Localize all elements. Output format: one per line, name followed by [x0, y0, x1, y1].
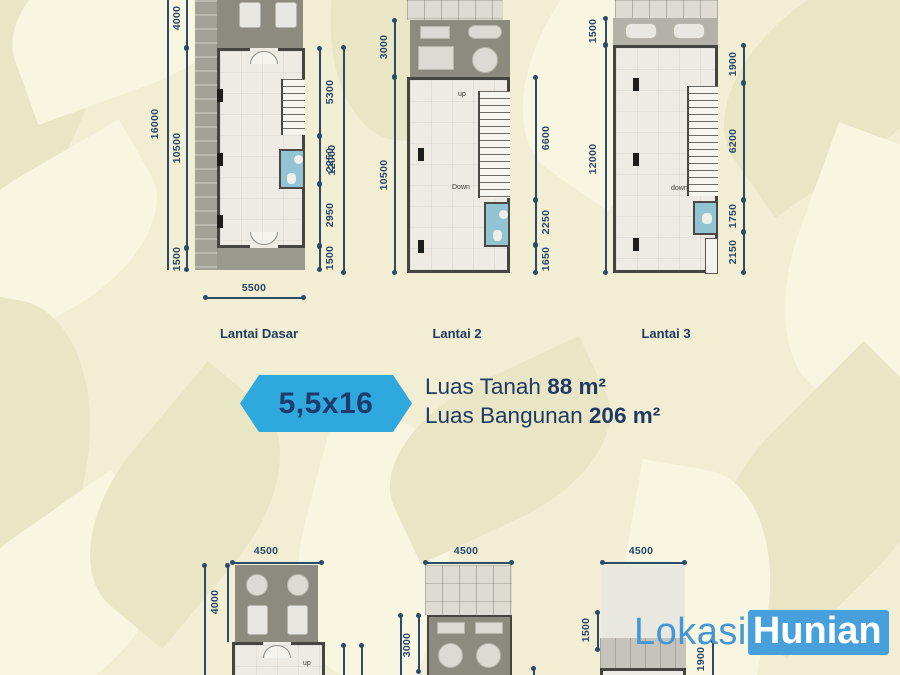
dim-line — [319, 48, 321, 136]
table-with-chairs — [287, 605, 308, 635]
watermark-logo: LokasiHunian — [634, 610, 889, 655]
door-arc — [250, 232, 264, 245]
sink-fixture — [499, 210, 508, 219]
dim-line — [319, 136, 321, 184]
dim-line — [361, 645, 363, 675]
dim-label: 3000 — [378, 35, 390, 60]
staircase — [687, 86, 718, 196]
dim-line — [602, 562, 685, 564]
dim-line — [167, 0, 169, 270]
staircase — [478, 91, 510, 198]
sofa — [673, 23, 705, 39]
dim-label: 1750 — [727, 204, 739, 229]
wall-column — [418, 148, 424, 161]
dim-label: 4000 — [209, 590, 221, 615]
dim-line — [535, 245, 537, 273]
bathroom — [279, 149, 305, 189]
dining-table — [418, 46, 454, 70]
dim-line — [605, 18, 607, 45]
toilet-fixture — [493, 230, 502, 241]
dining-table — [468, 25, 502, 39]
dim-label: 4500 — [454, 545, 479, 557]
dim-line — [597, 612, 599, 650]
size-badge-label: 5,5x16 — [279, 387, 374, 421]
specs-block: Luas Tanah 88 m² Luas Bangunan 206 m² — [425, 372, 660, 430]
dim-line — [533, 668, 535, 675]
wall-column — [217, 153, 223, 166]
dim-line — [743, 232, 745, 273]
dining-terrace — [410, 20, 510, 77]
dim-label: 12000 — [587, 144, 599, 175]
balcony — [613, 18, 718, 45]
dim-line — [535, 77, 537, 200]
dim-label: 10500 — [378, 160, 390, 191]
door-arc — [264, 232, 278, 245]
dim-label: 1500 — [171, 247, 183, 272]
sink-fixture — [294, 155, 303, 164]
building-area-value: 206 m² — [589, 403, 660, 428]
door-arc — [263, 645, 277, 658]
round-table — [287, 574, 309, 596]
dim-label: 16000 — [149, 109, 161, 140]
watermark-hunian: Hunian — [748, 610, 889, 655]
building-area-line: Luas Bangunan 206 m² — [425, 401, 660, 430]
dim-line — [535, 200, 537, 245]
stair-down-label: Down — [452, 184, 470, 191]
land-area-value: 88 m² — [547, 374, 606, 399]
dim-line — [605, 45, 607, 273]
dim-label: 2950 — [324, 203, 336, 228]
dim-line — [343, 47, 345, 273]
canopy-roof — [615, 0, 718, 18]
wall-column — [217, 215, 223, 228]
canopy-roof — [407, 0, 503, 20]
dim-line — [343, 645, 345, 675]
dim-line — [418, 615, 420, 672]
dim-label: 5500 — [242, 282, 267, 294]
dim-line — [743, 83, 745, 200]
dim-label: 1500 — [587, 19, 599, 44]
dim-label: 6600 — [540, 126, 552, 151]
stair-up-label: up — [458, 91, 466, 98]
dining-table — [475, 622, 503, 634]
wall-column — [217, 89, 223, 102]
dim-line — [205, 297, 304, 299]
bathroom — [693, 201, 718, 235]
sofa — [625, 23, 657, 39]
building-area-label: Luas Bangunan — [425, 403, 583, 428]
dining-table — [420, 26, 450, 39]
dim-line — [743, 45, 745, 83]
dim-label: 1500 — [324, 246, 336, 271]
dim-line — [394, 20, 396, 77]
kitchen-counter — [705, 238, 718, 274]
chair — [275, 2, 297, 28]
dim-line — [319, 184, 321, 246]
dim-label: 4500 — [629, 545, 654, 557]
dining-table — [437, 622, 465, 634]
land-area-label: Luas Tanah — [425, 374, 541, 399]
building-outline — [613, 45, 718, 273]
stair-down-label: down — [671, 185, 688, 192]
dim-label: 2250 — [540, 210, 552, 235]
bathroom — [484, 202, 510, 247]
back-strip — [217, 248, 305, 270]
wall-column — [633, 153, 639, 166]
dim-line — [204, 565, 206, 675]
chair — [239, 2, 261, 28]
dim-line — [743, 200, 745, 232]
dim-label: 12000 — [326, 145, 338, 176]
building-outline — [407, 77, 510, 273]
round-table — [476, 643, 501, 668]
dim-label: 1650 — [540, 247, 552, 272]
toilet-fixture — [287, 173, 296, 184]
dim-line — [186, 48, 188, 248]
toilet-fixture — [702, 213, 712, 224]
size-badge: 5,5x16 — [240, 375, 412, 432]
dim-label: 6200 — [727, 129, 739, 154]
canopy-roof — [425, 565, 512, 615]
dim-label: 5300 — [324, 80, 336, 105]
dim-label: 3000 — [401, 633, 413, 658]
watermark-lokasi: Lokasi — [634, 611, 747, 654]
dim-label: 10500 — [171, 133, 183, 164]
table-with-chairs — [247, 605, 268, 635]
round-table — [438, 643, 463, 668]
terrace — [235, 565, 318, 642]
dim-line — [186, 0, 188, 48]
round-table — [246, 574, 268, 596]
door-arc — [264, 51, 278, 64]
dining-terrace — [427, 615, 512, 675]
dim-line — [227, 565, 229, 642]
land-area-line: Luas Tanah 88 m² — [425, 372, 660, 401]
dim-label: 1500 — [580, 618, 592, 643]
stair-up-label: up — [303, 660, 311, 667]
building-outline — [600, 668, 686, 675]
driveway — [195, 0, 217, 270]
door-arc — [250, 51, 264, 64]
door-arc — [277, 645, 291, 658]
floor-plan-flyer: 16000 4000 10500 1500 5300 2250 2950 150… — [0, 0, 900, 675]
plan-title-lantai-dasar: Lantai Dasar — [220, 326, 298, 341]
dim-label: 1900 — [727, 52, 739, 77]
building-outline — [217, 48, 305, 248]
building-outline — [232, 642, 325, 675]
dim-line — [319, 246, 321, 270]
dim-label: 2150 — [727, 240, 739, 265]
plan-title-lantai-2: Lantai 2 — [432, 326, 481, 341]
dim-label: 4500 — [254, 545, 279, 557]
terrace — [217, 0, 303, 48]
wall-column — [418, 240, 424, 253]
dim-line — [186, 248, 188, 270]
wall-column — [633, 238, 639, 251]
dim-line — [232, 562, 322, 564]
staircase — [281, 79, 305, 135]
round-table — [472, 47, 498, 73]
plan-title-lantai-3: Lantai 3 — [641, 326, 690, 341]
dim-label: 4000 — [171, 6, 183, 31]
dim-line — [425, 562, 512, 564]
dim-line — [394, 77, 396, 273]
wall-column — [633, 78, 639, 91]
